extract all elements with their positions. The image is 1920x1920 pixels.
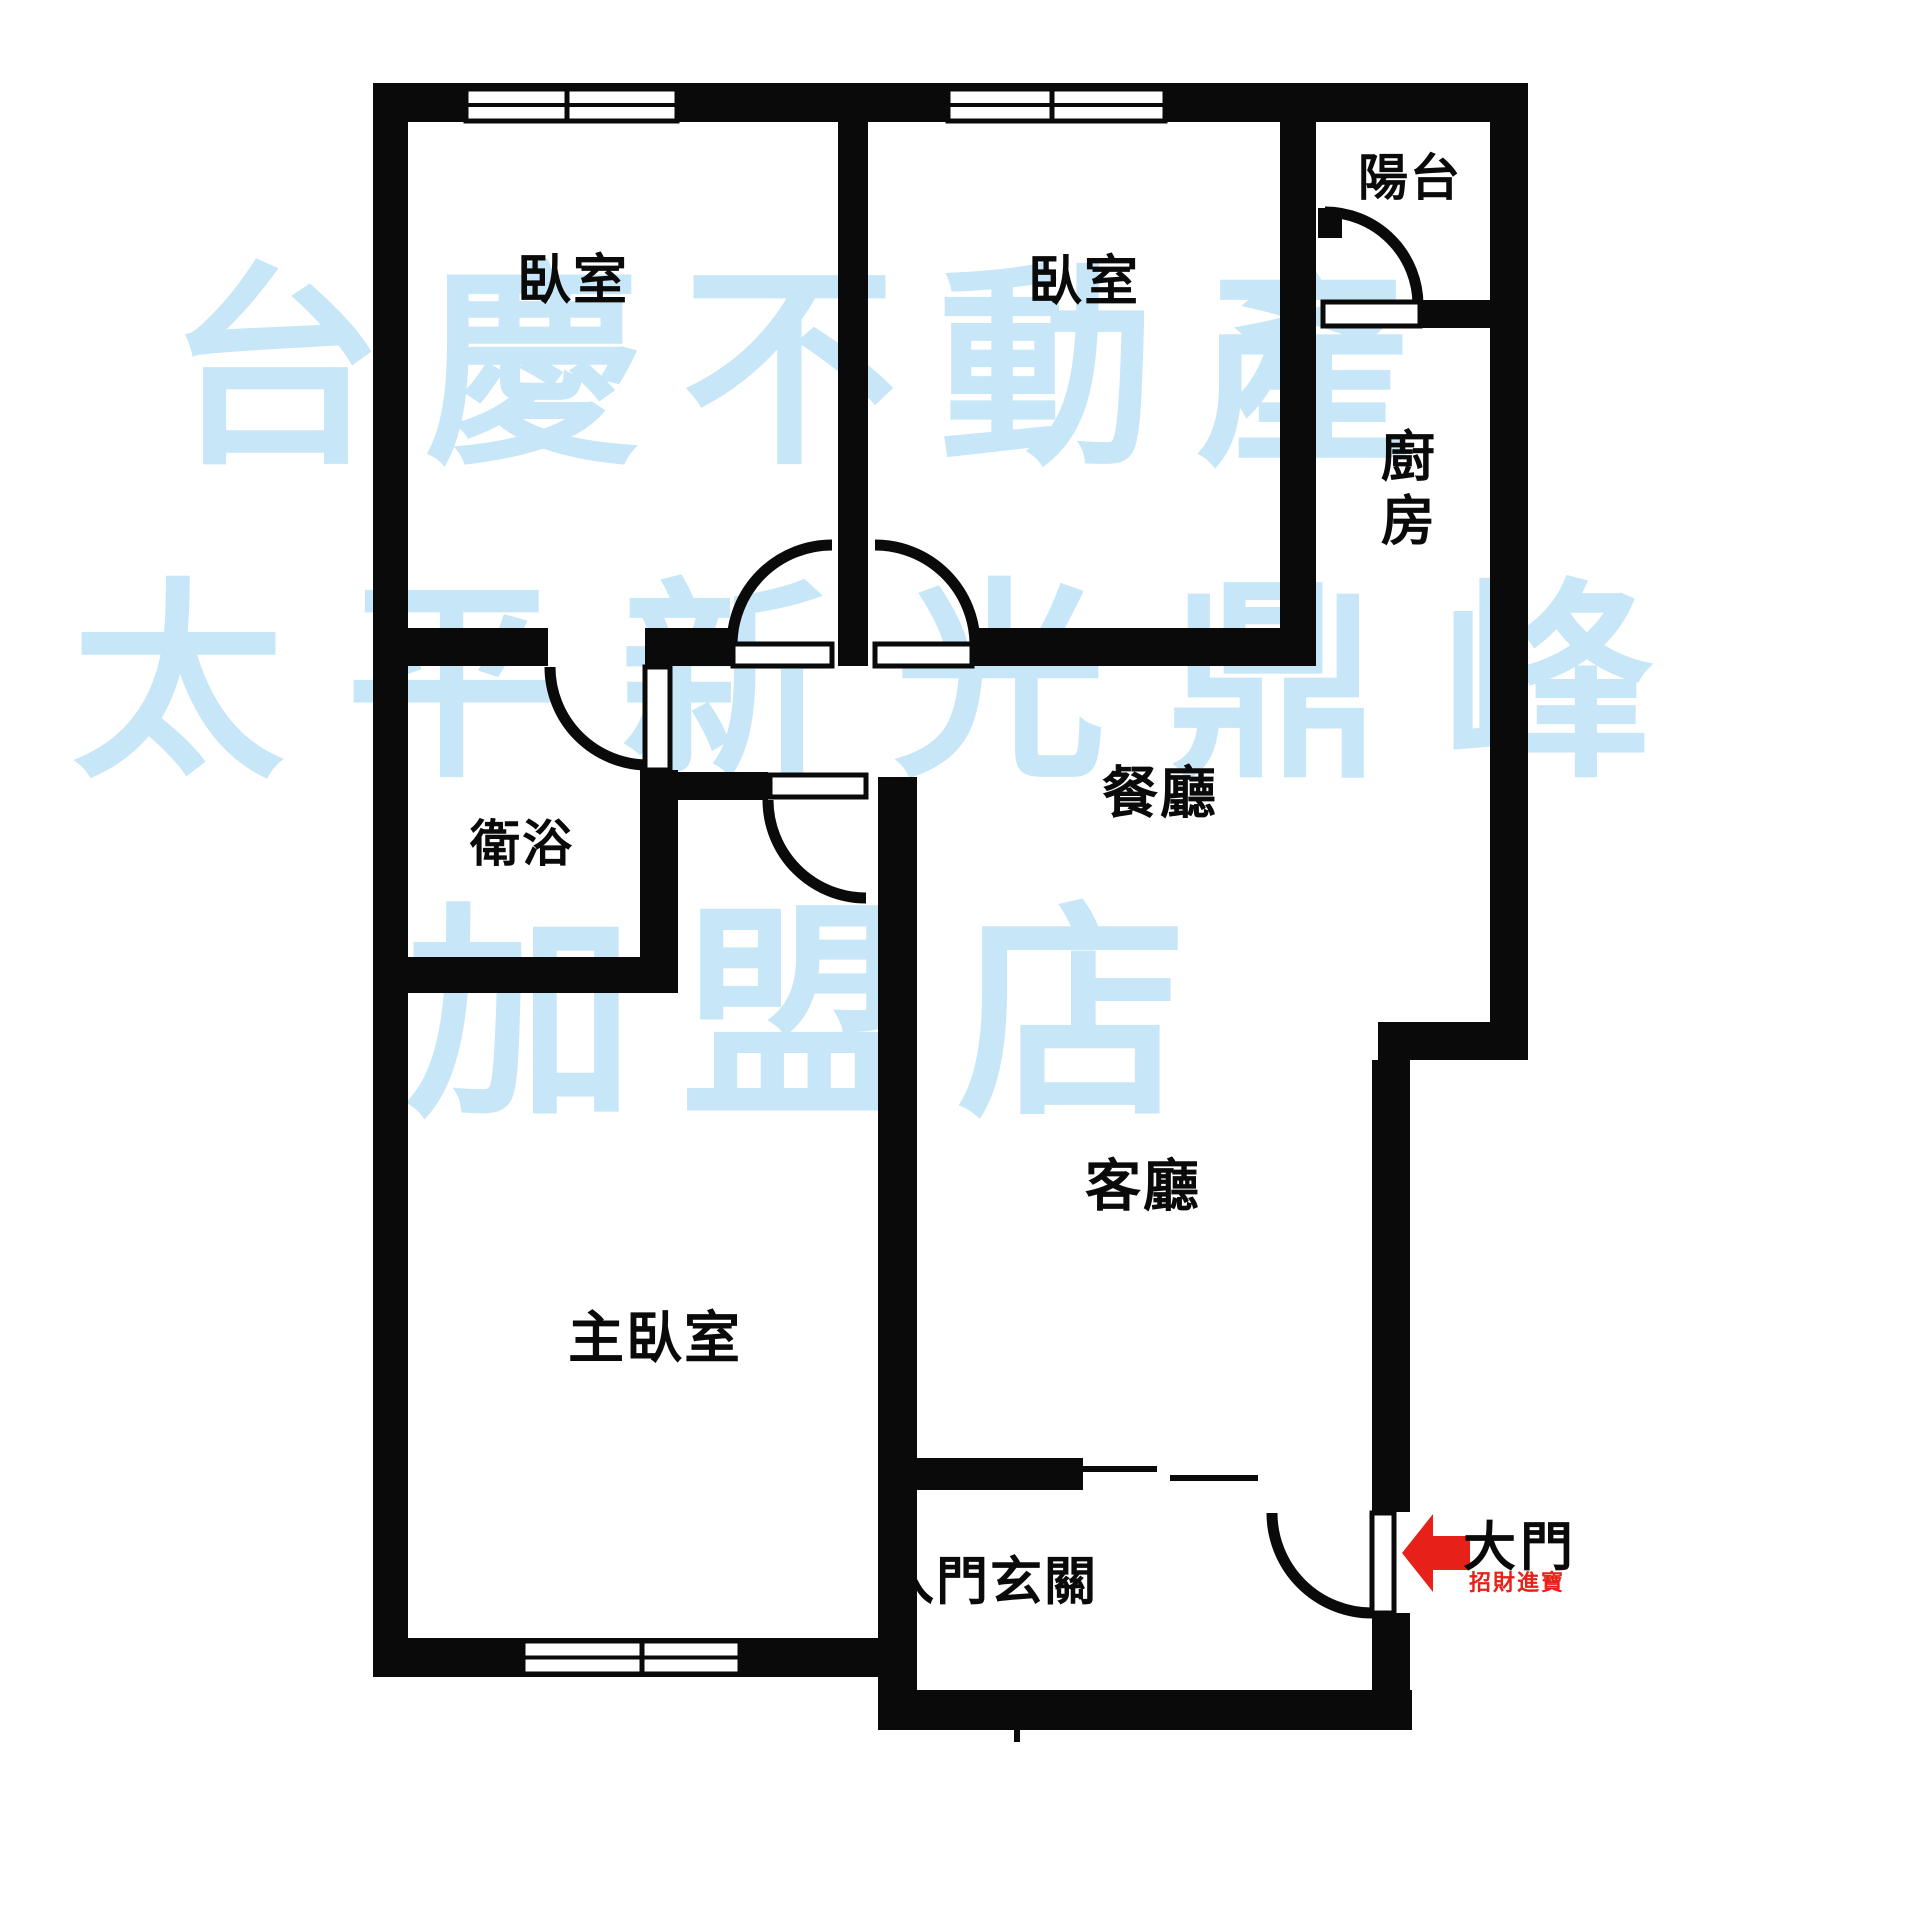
blessing-label: 招財進寶 [1469,1565,1565,1597]
floorplan-page: 台慶不動產太平新光鼎峰加盟店 臥室臥室陽台廚房衛浴餐廳客廳主臥室入門玄關 大門 … [0,0,1920,1920]
entrance-annotation: 大門 招財進寶 [0,0,1920,1920]
